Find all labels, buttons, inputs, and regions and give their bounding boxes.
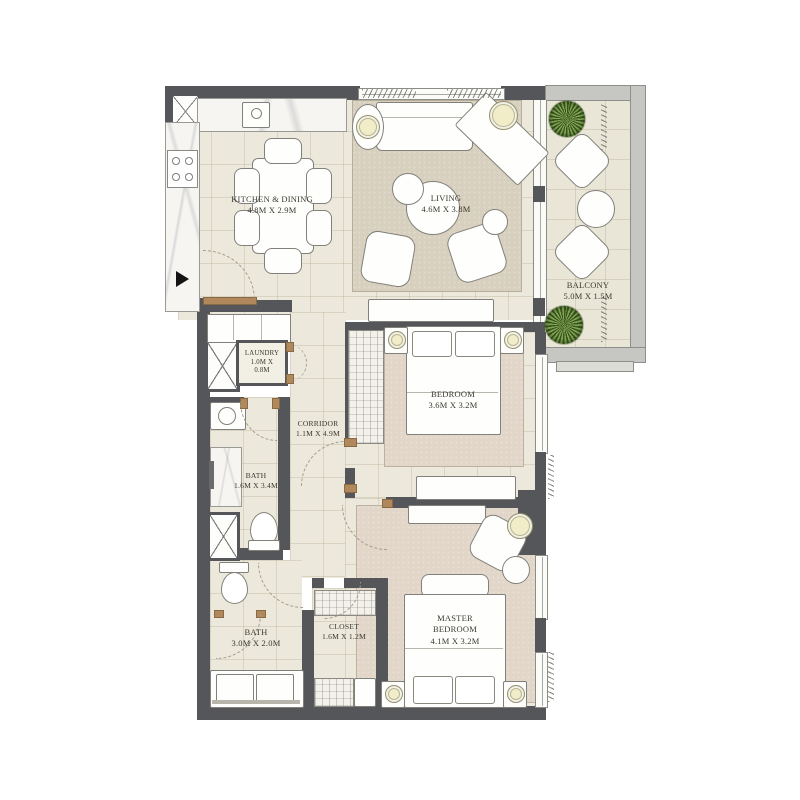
wall-closet-top-a	[312, 578, 324, 588]
bedroom-lamp-left-icon	[388, 331, 406, 349]
corridor-name: CORRIDOR	[298, 419, 339, 429]
bedroom-dims: 3.6M X 3.2M	[429, 400, 478, 411]
armchair-left	[359, 229, 417, 289]
kitchen-name: KITCHEN & DINING	[231, 194, 313, 205]
bedroom-pillow	[412, 331, 452, 357]
bath1-sink	[218, 407, 236, 425]
closet-dims: 1.6M X 1.2M	[322, 632, 366, 642]
living-name: LIVING	[431, 193, 461, 204]
laundry-dims: 1.0M X 0.8M	[245, 359, 279, 376]
wall-top-right	[501, 86, 545, 100]
bedroom-lamp-right-icon	[504, 331, 522, 349]
balcony-dims: 5.0M X 1.5M	[564, 291, 613, 302]
wall-bedroom-left-lower	[345, 468, 355, 498]
stove-cooktop	[167, 150, 198, 188]
bath2-label: BATH 3.0M X 2.0M	[214, 625, 298, 651]
master-dresser	[408, 505, 486, 524]
dining-chair	[264, 138, 302, 164]
balcony-plant-top-icon	[549, 101, 585, 137]
wall-bottom	[197, 706, 546, 720]
entry-arrow-icon	[176, 271, 189, 287]
balcony-name: BALCONY	[567, 280, 610, 291]
bath1-dims: 1.6M X 3.4M	[234, 481, 278, 491]
master-lamp-left-icon	[385, 685, 403, 703]
bath2-counter-edge	[212, 700, 300, 704]
wall-right-seg1	[535, 332, 546, 354]
dimension-ticks	[447, 89, 501, 98]
closet-shelf-bottom	[314, 678, 354, 707]
master-lamp-table-icon	[507, 513, 533, 539]
master-label: MASTER BEDROOM 4.1M X 3.2M	[409, 608, 501, 652]
closet-cabinet	[354, 678, 376, 707]
floor-plan: KITCHEN & DINING 4.8M X 2.9M LIVING 4.6M…	[0, 0, 800, 800]
wall-right-seg3	[535, 618, 546, 652]
bath2-toilet	[221, 572, 248, 604]
glazing-mullion	[533, 298, 545, 316]
living-label: LIVING 4.6M X 3.8M	[399, 191, 493, 217]
kitchen-label: KITCHEN & DINING 4.8M X 2.9M	[212, 192, 332, 218]
plant-pot-icon	[356, 115, 380, 139]
bedroom-wardrobe	[348, 330, 384, 444]
living-dims: 4.6M X 3.8M	[422, 204, 471, 215]
laundry-label: LAUNDRY 1.0M X 0.8M	[236, 341, 288, 385]
balcony-right-rail	[630, 85, 646, 363]
master-window-2	[535, 652, 548, 708]
balcony-plant-bottom-icon	[545, 306, 583, 344]
dimension-ticks	[548, 455, 554, 499]
bedroom-pillow	[455, 331, 495, 357]
bath2-dims: 3.0M X 2.0M	[232, 638, 281, 649]
balcony-ledge	[556, 361, 634, 372]
master-dims: 4.1M X 3.2M	[431, 636, 480, 647]
shaft-bath	[207, 512, 240, 561]
bedroom-label: BEDROOM 3.6M X 3.2M	[407, 387, 499, 413]
corner-plant-pot-icon	[489, 101, 518, 130]
master-lamp-right-icon	[507, 685, 525, 703]
bath1-label: BATH 1.6M X 3.4M	[228, 468, 284, 494]
sofa-back-line	[378, 117, 469, 118]
closet-label: CLOSET 1.6M X 1.2M	[308, 619, 380, 645]
dimension-ticks	[362, 89, 416, 98]
laundry-appliances	[207, 314, 291, 343]
glazing-mullion	[533, 186, 545, 202]
appliance-divider	[261, 315, 262, 340]
bath1-toilet-tank	[248, 540, 280, 551]
laundry-name: LAUNDRY	[245, 350, 279, 358]
corridor-label: CORRIDOR 1.1M X 4.9M	[288, 416, 348, 442]
balcony-table	[577, 190, 615, 228]
master-name: MASTER BEDROOM	[423, 613, 487, 635]
bedroom-dresser	[416, 476, 516, 500]
corridor-dims: 1.1M X 4.9M	[296, 429, 340, 439]
balcony-sliding-door	[533, 100, 547, 322]
balcony-label: BALCONY 5.0M X 1.5M	[548, 278, 628, 304]
bath2-name: BATH	[245, 627, 268, 638]
shaft-laundry	[205, 340, 240, 392]
bath2-mirror-left	[216, 674, 254, 702]
bedroom-window	[535, 354, 548, 454]
closet-name: CLOSET	[329, 622, 359, 632]
kitchen-sink-drain	[251, 108, 262, 119]
dining-chair	[264, 248, 302, 274]
shower-fixture	[209, 461, 214, 489]
appliance-divider	[233, 315, 234, 340]
bath1-name: BATH	[246, 471, 267, 481]
master-pillow	[413, 676, 453, 704]
kitchen-dims: 4.8M X 2.9M	[248, 205, 297, 216]
bath2-mirror-right	[256, 674, 294, 702]
wall-right-seg2	[535, 452, 546, 502]
master-ottoman	[502, 556, 530, 584]
master-pillow	[455, 676, 495, 704]
kitchen-counter-top	[197, 98, 347, 132]
dimension-ticks	[601, 104, 607, 150]
dimension-ticks	[548, 652, 554, 702]
master-window-1	[535, 555, 548, 620]
tv-console	[368, 299, 494, 322]
bedroom-name: BEDROOM	[431, 389, 475, 400]
